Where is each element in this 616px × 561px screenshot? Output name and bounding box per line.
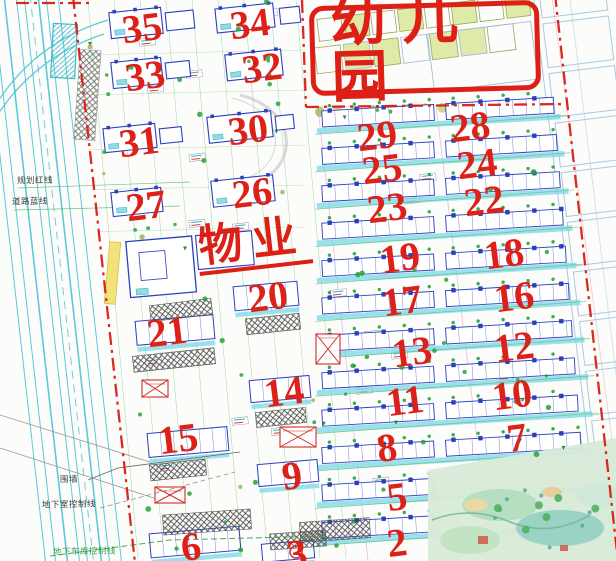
site-plan-canvas: 3534333231302928272625242322212019181716… <box>0 0 616 561</box>
kindergarten-label-box: 幼儿园 <box>309 0 541 96</box>
kindergarten-label: 幼儿园 <box>313 0 536 107</box>
